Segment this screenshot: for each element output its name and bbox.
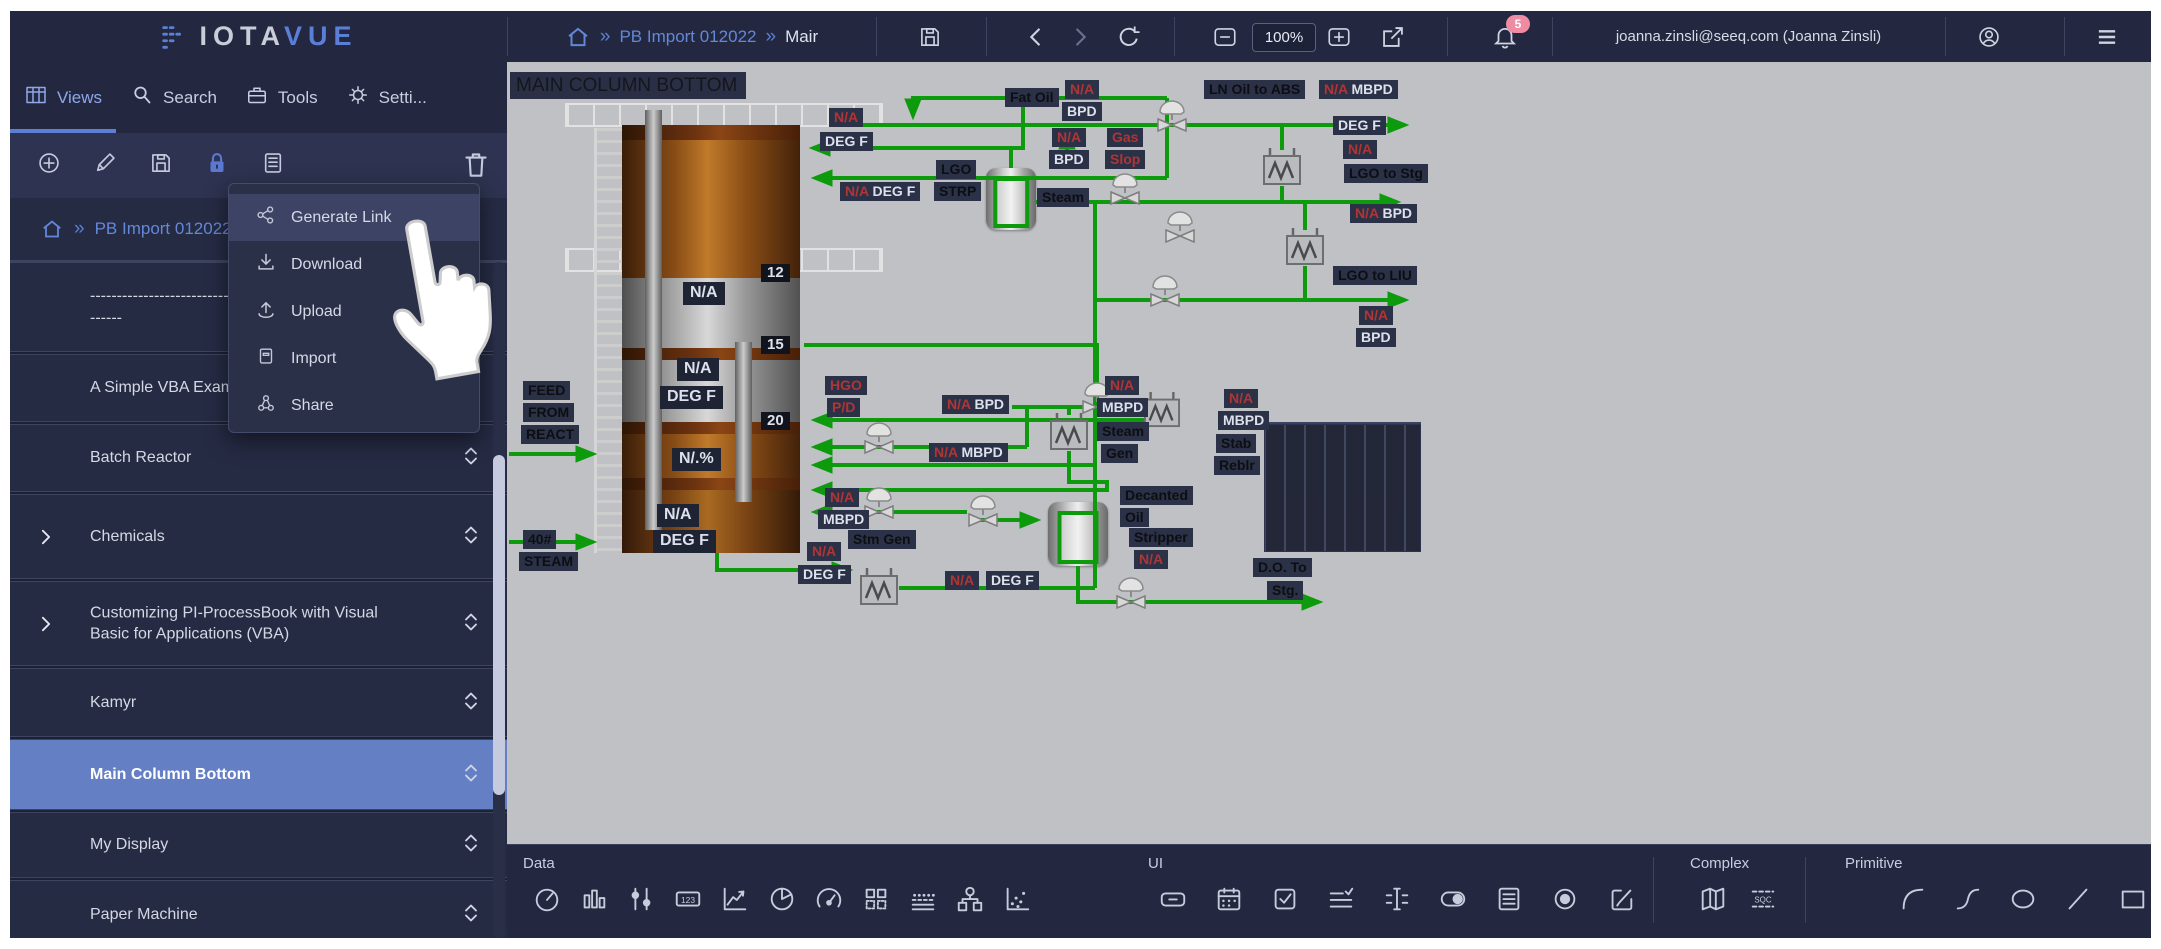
value-chip: Gen <box>1101 444 1138 463</box>
menu-item-upload[interactable]: Upload <box>229 288 479 335</box>
notifications-badge: 5 <box>1506 15 1530 33</box>
sidebar-tabs: ViewsSearchToolsSetti... <box>10 62 507 134</box>
sidebar-breadcrumb-label[interactable]: PB Import 012022 <box>95 219 232 239</box>
expand-chevron-icon[interactable] <box>36 527 56 547</box>
zoom-out-button[interactable] <box>1206 18 1244 56</box>
menu-item-label: Import <box>291 350 336 368</box>
pie-chart-widget-button[interactable] <box>764 883 800 919</box>
value-chip: Stripper <box>1129 528 1193 547</box>
download-icon <box>255 251 277 278</box>
tab-setti[interactable]: Setti... <box>332 62 441 133</box>
value-chip: N/A <box>1343 140 1377 159</box>
sort-handle-icon[interactable] <box>461 612 481 636</box>
app-logo: IOTAVUE <box>10 11 507 62</box>
sqc-icon: SQC <box>1748 884 1778 919</box>
toolbar-section-label-ui: UI <box>1148 855 1163 872</box>
bar-chart-icon <box>579 884 609 919</box>
map-widget-button[interactable] <box>1695 883 1731 919</box>
curve-widget-button[interactable] <box>1950 883 1986 919</box>
sidebar-item-kamyr[interactable]: Kamyr <box>10 668 507 739</box>
trash-icon[interactable] <box>459 148 493 182</box>
hamburger-menu-icon[interactable] <box>2088 18 2126 56</box>
scatter-widget-button[interactable] <box>999 883 1035 919</box>
tab-label: Tools <box>278 88 318 108</box>
menu-item-generate-link[interactable]: Generate Link <box>229 194 479 241</box>
account-icon[interactable] <box>1970 18 2008 56</box>
add-button[interactable] <box>32 149 66 183</box>
back-button[interactable] <box>1018 18 1056 56</box>
sidebar-item-paper-machine[interactable]: Paper Machine <box>10 880 507 938</box>
column-internal-pipe <box>645 110 662 530</box>
tab-views[interactable]: Views <box>10 62 116 133</box>
tree-widget-button[interactable] <box>952 883 988 919</box>
value-chip: N/A <box>945 571 979 590</box>
value-chip: LGO <box>936 160 976 179</box>
sort-handle-icon[interactable] <box>461 691 481 715</box>
arc-widget-button[interactable] <box>1895 883 1931 919</box>
svg-text:SQC: SQC <box>1754 895 1771 904</box>
sidebar-item-label: Chemicals <box>90 526 420 548</box>
value-chip: Stm Gen <box>848 530 916 549</box>
breadcrumb-separator: » <box>765 26 776 48</box>
share-icon <box>255 392 277 419</box>
breadcrumb-current: Mair <box>785 27 818 47</box>
value-chip: FROM <box>523 403 574 422</box>
value-chip: DEG F <box>820 132 873 151</box>
save-display-button[interactable] <box>911 18 949 56</box>
button-widget-button[interactable] <box>1155 883 1191 919</box>
value-chip: MBPD <box>1097 398 1148 417</box>
sidebar-item-label: My Display <box>90 834 420 856</box>
area-widget-button[interactable] <box>905 883 941 919</box>
value-chip: Gas <box>1107 128 1143 147</box>
search-icon <box>130 83 154 112</box>
value-chip: N/A <box>1134 550 1168 569</box>
sidebar-item-customizing-pi-processbook[interactable]: Customizing PI-ProcessBook with Visual B… <box>10 581 507 668</box>
tab-label: Views <box>57 88 102 108</box>
user-email: joanna.zinsli@seeq.com (Joanna Zinsli) <box>1552 11 1945 62</box>
dial-widget-button[interactable] <box>811 883 847 919</box>
expand-chevron-icon[interactable] <box>36 614 56 634</box>
ellipse-icon <box>2008 884 2038 919</box>
trend-widget-button[interactable] <box>717 883 753 919</box>
arc-icon <box>1898 884 1928 919</box>
logo-icon <box>159 22 189 52</box>
value-chip: LGO to LIU <box>1333 266 1417 285</box>
zoom-level-field[interactable]: 100% <box>1252 23 1316 52</box>
display-title: MAIN COLUMN BOTTOM <box>510 72 746 99</box>
edit-box-icon <box>1606 884 1636 919</box>
tab-label: Search <box>163 88 217 108</box>
value-chip: LGO to Stg <box>1344 164 1428 183</box>
widget-toolbar: Data123UIComplexSQCPrimitive <box>507 844 2151 938</box>
value-chip: Stab <box>1216 434 1256 453</box>
edit-box-widget-button[interactable] <box>1603 883 1639 919</box>
slider-icon <box>626 884 656 919</box>
pie-chart-icon <box>767 884 797 919</box>
value-chip: N/A BPD <box>942 395 1009 414</box>
toolbar-divider <box>1805 857 1806 923</box>
text-input-icon <box>1382 884 1412 919</box>
sidebar-item-label: Batch Reactor <box>90 447 420 469</box>
menu-item-import[interactable]: Import <box>229 335 479 382</box>
value-chip: HGO <box>825 376 867 395</box>
value-chip: DEG F <box>1333 116 1386 135</box>
lock-icon <box>204 150 230 181</box>
value-chip: N/A <box>1052 128 1086 147</box>
list-box-icon <box>1494 884 1524 919</box>
sort-handle-icon[interactable] <box>461 525 481 549</box>
storage-tank <box>1264 422 1421 552</box>
menu-item-label: Download <box>291 256 362 274</box>
bar-chart-widget-button[interactable] <box>576 883 612 919</box>
gauge-widget-button[interactable] <box>529 883 565 919</box>
import-icon <box>255 345 277 372</box>
numeric-display-widget-button[interactable]: 123 <box>670 883 706 919</box>
value-chip: STRP <box>934 182 981 201</box>
save-button[interactable] <box>144 149 178 183</box>
menu-item-label: Share <box>291 397 334 415</box>
value-chip: 40# <box>523 530 556 549</box>
value-chip: MBPD <box>818 510 869 529</box>
application-window: IOTAVUE » PB Import 012022 » Mair <box>10 11 2151 938</box>
value-chip: BPD <box>1062 102 1102 121</box>
toolbar-section-label-complex: Complex <box>1690 855 1749 872</box>
edit-icon <box>92 150 118 181</box>
display-canvas[interactable]: MAIN COLUMN BOTTOM <box>507 62 2151 844</box>
list-icon <box>260 150 286 181</box>
area-icon <box>908 884 938 919</box>
data-grid-widget-button[interactable] <box>858 883 894 919</box>
lgo-stripper-vessel <box>986 168 1036 230</box>
top-bar: IOTAVUE » PB Import 012022 » Mair <box>10 11 2151 63</box>
breadcrumb-separator: » <box>600 26 611 48</box>
value-chip: MBPD <box>1218 411 1269 430</box>
tab-search[interactable]: Search <box>116 62 231 133</box>
value-chip: LN Oil to ABS <box>1204 80 1305 99</box>
button-icon <box>1158 884 1188 919</box>
value-chip: Slop <box>1105 150 1145 169</box>
trend-icon <box>720 884 750 919</box>
list-box-widget-button[interactable] <box>1491 883 1527 919</box>
sort-handle-icon[interactable] <box>461 903 481 927</box>
multi-state-widget-button[interactable] <box>1323 883 1359 919</box>
open-external-button[interactable] <box>1374 18 1412 56</box>
list-context-menu: Generate LinkDownloadUploadImportShare <box>228 183 480 433</box>
value-chip: STEAM <box>519 552 578 571</box>
value-chip: Stg. <box>1267 581 1303 600</box>
value-chip: P/D <box>827 398 860 417</box>
toolbar-section-label-data: Data <box>523 855 555 872</box>
map-icon <box>1698 884 1728 919</box>
value-chip: Oil <box>1120 508 1149 527</box>
value-chip: Steam <box>1037 188 1089 207</box>
value-chip: N/A MBPD <box>929 443 1008 462</box>
value-chip: BPD <box>1356 328 1396 347</box>
gauge-icon <box>532 884 562 919</box>
column-internal-pipe <box>735 342 752 502</box>
value-chip: N/A <box>1065 80 1099 99</box>
rectangle-widget-button[interactable] <box>2115 883 2151 919</box>
sort-handle-icon[interactable] <box>461 763 481 787</box>
home-icon[interactable] <box>565 24 591 50</box>
date-picker-icon <box>1214 884 1244 919</box>
breadcrumb-separator: » <box>74 218 85 240</box>
breadcrumb-folder[interactable]: PB Import 012022 <box>619 27 756 47</box>
sort-handle-icon[interactable] <box>461 833 481 857</box>
sidebar-scrollbar-thumb[interactable] <box>493 455 505 795</box>
menu-item-label: Generate Link <box>291 209 392 227</box>
grid-icon <box>24 83 48 112</box>
menu-item-label: Upload <box>291 303 342 321</box>
value-chip: Decanted <box>1120 486 1193 505</box>
value-chip: N/A BPD <box>1350 204 1417 223</box>
scatter-icon <box>1002 884 1032 919</box>
sqc-widget-button[interactable]: SQC <box>1745 883 1781 919</box>
generate-link-icon <box>255 204 277 231</box>
breadcrumb: » PB Import 012022 » Mair <box>507 11 876 62</box>
line-icon <box>2063 884 2093 919</box>
value-chip: N/A DEG F <box>840 182 920 201</box>
data-grid-icon <box>861 884 891 919</box>
zoom-in-button[interactable] <box>1320 18 1358 56</box>
menu-item-download[interactable]: Download <box>229 241 479 288</box>
toolbar-divider <box>1653 857 1654 923</box>
sidebar-item-label: Paper Machine <box>90 904 420 926</box>
value-chip: DEG F <box>798 565 851 584</box>
value-chip: Fat Oil <box>1005 88 1059 107</box>
checkbox-widget-button[interactable] <box>1267 883 1303 919</box>
checkbox-icon <box>1270 884 1300 919</box>
add-icon <box>36 150 62 181</box>
sidebar-item-batch-reactor[interactable]: Batch Reactor <box>10 424 507 494</box>
list-button[interactable] <box>256 149 290 183</box>
home-icon[interactable] <box>40 217 64 241</box>
gear-icon <box>346 83 370 112</box>
radio-widget-button[interactable] <box>1547 883 1583 919</box>
sidebar-scrollbar <box>493 262 505 938</box>
slider-widget-button[interactable] <box>623 883 659 919</box>
value-chip: REACT <box>521 425 579 444</box>
value-chip: N/A <box>1359 306 1393 325</box>
tools-icon <box>245 83 269 112</box>
value-chip: N/A <box>1224 389 1258 408</box>
value-chip: DEG F <box>986 571 1039 590</box>
value-chip: D.O. To <box>1253 558 1312 577</box>
value-chip: Reblr <box>1214 456 1260 475</box>
tree-icon <box>955 884 985 919</box>
save-icon <box>148 150 174 181</box>
numeric-display-icon: 123 <box>673 884 703 919</box>
sort-handle-icon[interactable] <box>461 446 481 470</box>
value-chip: N/A MBPD <box>1319 80 1398 99</box>
ellipse-widget-button[interactable] <box>2005 883 2041 919</box>
sidebar-item-main-column-bottom[interactable]: Main Column Bottom <box>10 739 507 812</box>
toolbar-section-label-primitive: Primitive <box>1845 855 1903 872</box>
sidebar-item-label: Kamyr <box>90 692 420 714</box>
text-input-widget-button[interactable] <box>1379 883 1415 919</box>
tab-tools[interactable]: Tools <box>231 62 332 133</box>
rectangle-icon <box>2118 884 2148 919</box>
column-platform-top <box>565 103 883 127</box>
sidebar-item-label: Main Column Bottom <box>90 764 420 786</box>
sidebar-item-chemicals[interactable]: Chemicals <box>10 494 507 581</box>
upload-icon <box>255 298 277 325</box>
curve-icon <box>1953 884 1983 919</box>
tab-label: Setti... <box>379 88 427 108</box>
date-picker-widget-button[interactable] <box>1211 883 1247 919</box>
value-chip: BPD <box>1049 150 1089 169</box>
refresh-button[interactable] <box>1110 18 1148 56</box>
edit-button[interactable] <box>88 149 122 183</box>
sidebar-item-my-display[interactable]: My Display <box>10 812 507 880</box>
sidebar-item-label: Customizing PI-ProcessBook with Visual B… <box>90 602 420 645</box>
lock-button[interactable] <box>200 149 234 183</box>
forward-button[interactable] <box>1060 18 1098 56</box>
menu-item-share[interactable]: Share <box>229 382 479 429</box>
line-widget-button[interactable] <box>2060 883 2096 919</box>
decanted-oil-stripper-vessel <box>1048 502 1108 566</box>
radio-icon <box>1550 884 1580 919</box>
value-chip: N/A <box>825 488 859 507</box>
value-chip: N/A <box>1105 376 1139 395</box>
toggle-widget-button[interactable] <box>1435 883 1471 919</box>
value-chip: Steam <box>1097 422 1149 441</box>
logo-text: IOTAVUE <box>199 21 357 52</box>
dial-icon <box>814 884 844 919</box>
toggle-icon <box>1438 884 1468 919</box>
value-chip: FEED <box>523 381 570 400</box>
multi-state-icon <box>1326 884 1356 919</box>
value-chip: N/A <box>807 542 841 561</box>
svg-text:123: 123 <box>681 894 695 904</box>
